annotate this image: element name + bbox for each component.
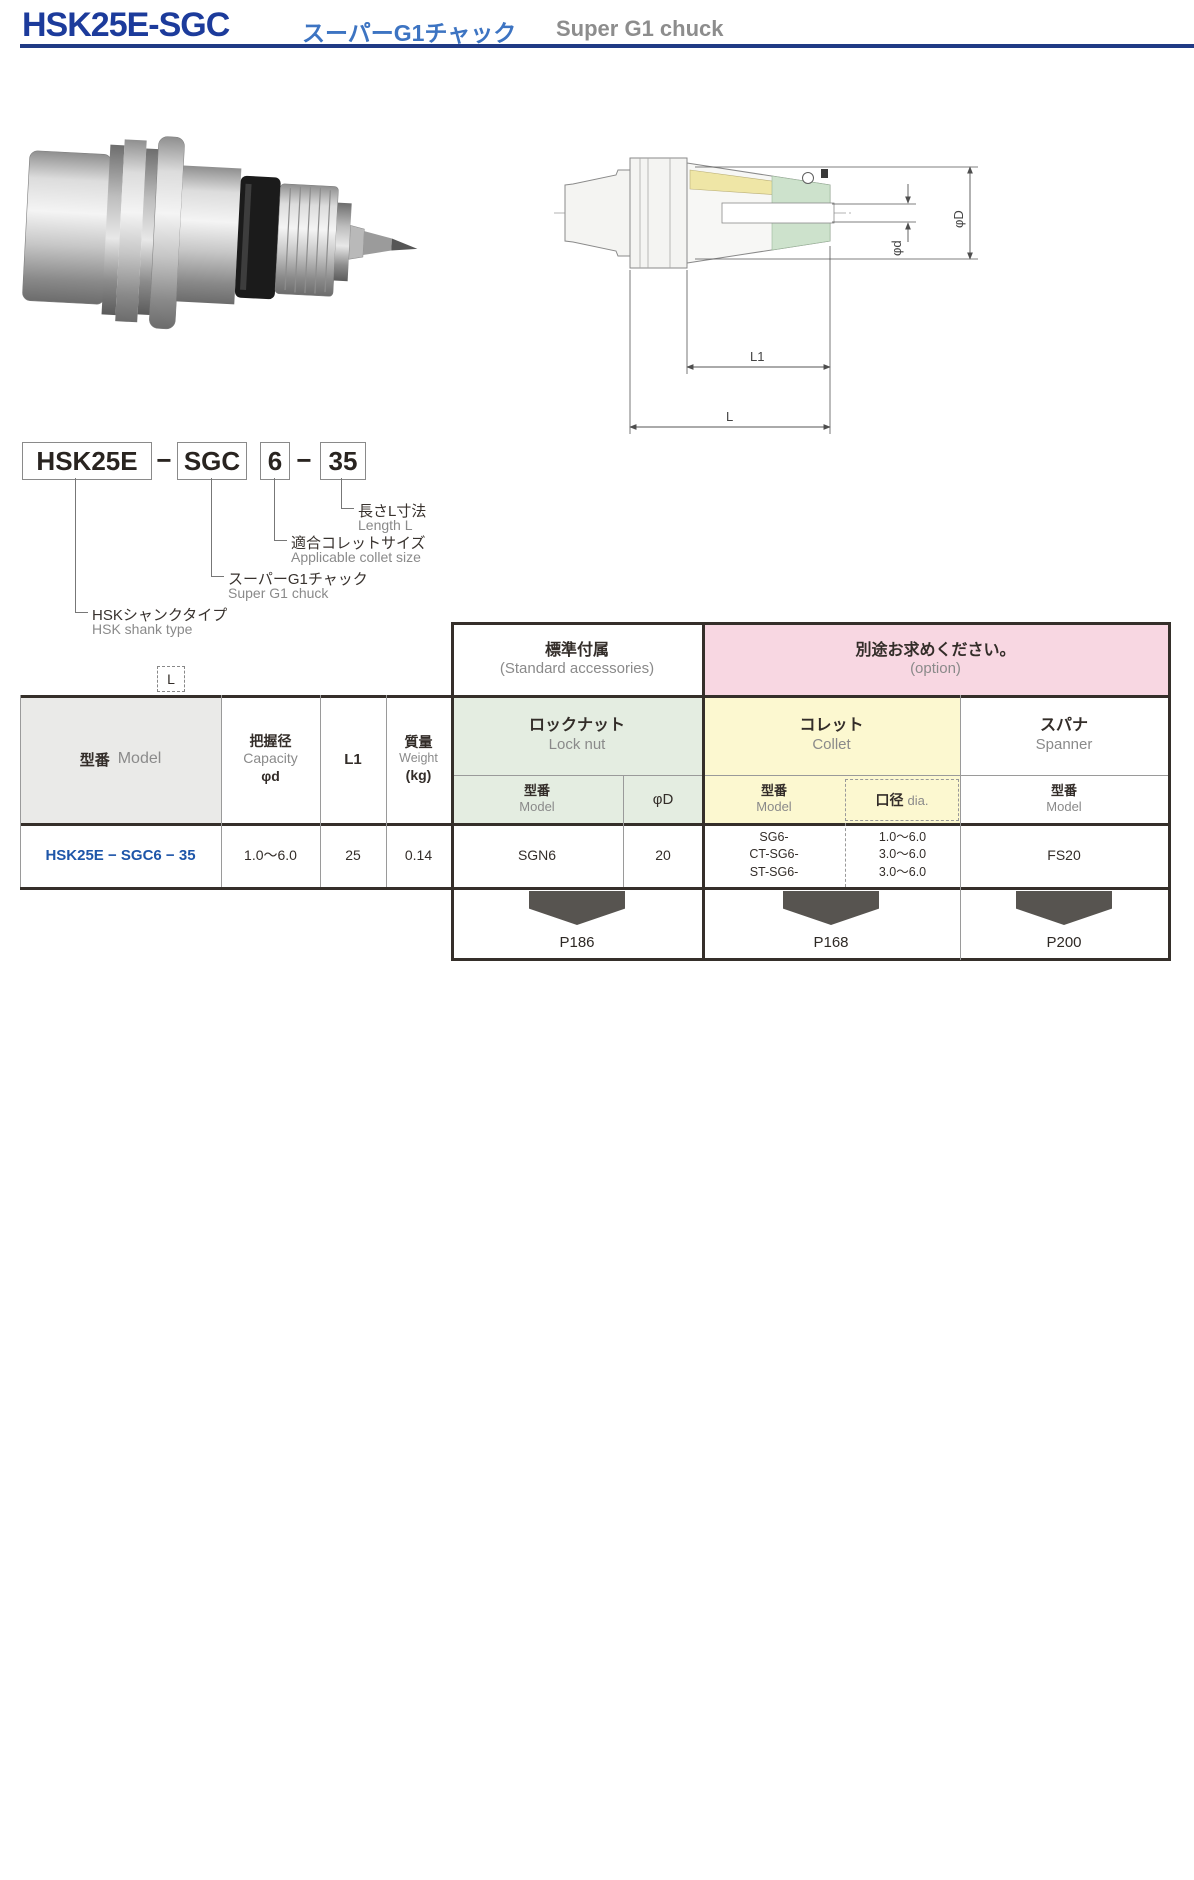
collet-dia-line: 3.0〜6.0 <box>879 846 926 864</box>
col-header-model: 型番 Model <box>20 695 221 823</box>
code-box-collet-size: 6 <box>260 442 290 480</box>
dim-label-L1: L1 <box>750 349 764 364</box>
option-jp: 別途お求めください。 <box>855 641 1015 661</box>
drawing-ball-detail <box>803 173 814 184</box>
subheader-spanner-model: 型番 Model <box>960 775 1168 823</box>
row-collet-models: SG6- CT-SG6- ST-SG6- <box>703 823 845 887</box>
page-ref-locknut: P186 <box>529 930 625 954</box>
callout-line <box>341 508 354 509</box>
col-capacity-phid: φd <box>261 768 280 785</box>
code-dash: − <box>152 442 176 478</box>
row-locknut-model: SGN6 <box>451 823 623 887</box>
col-weight-jp: 質量 <box>405 734 433 751</box>
photo-collet-tip <box>349 225 365 260</box>
col-model-jp: 型番 <box>80 749 110 770</box>
photo-drill-shank <box>363 231 392 256</box>
callout-line <box>274 478 275 540</box>
drawing-clamp-detail <box>821 169 828 178</box>
subheader-model-en: Model <box>756 799 791 815</box>
subheader-locknut-model: 型番 Model <box>451 775 623 823</box>
page-ref-arrow <box>529 891 625 925</box>
dim-label-L: L <box>726 409 733 424</box>
subheader-model-jp: 型番 <box>1051 783 1077 799</box>
callout-line <box>75 612 88 613</box>
option-en: (option) <box>910 660 961 678</box>
drawing-bore <box>722 203 834 223</box>
col-header-l1: L1 <box>320 695 386 823</box>
callout-line <box>211 478 212 576</box>
collet-model-line: ST-SG6- <box>750 864 799 882</box>
row-weight: 0.14 <box>386 823 451 887</box>
col-spanner-en: Spanner <box>1036 736 1093 754</box>
group-header-option: 別途お求めください。 (option) <box>703 624 1168 695</box>
col-capacity-jp: 把握径 <box>250 733 292 750</box>
col-header-capacity: 把握径 Capacity φd <box>221 695 320 823</box>
photo-drill-tip <box>391 239 418 252</box>
callout-line <box>75 478 76 612</box>
col-collet-jp: コレット <box>799 716 863 736</box>
code-box-length: 35 <box>320 442 366 480</box>
toolholder-photo-group <box>21 129 420 341</box>
subheader-dia-en: dia. <box>908 793 929 808</box>
col-header-weight: 質量 Weight (kg) <box>386 695 451 823</box>
table-border <box>1168 622 1171 961</box>
col-weight-en: Weight <box>399 751 438 766</box>
collet-model-line: CT-SG6- <box>749 846 798 864</box>
callout-shank-en: HSK shank type <box>92 621 192 637</box>
code-box-series: SGC <box>177 442 247 480</box>
col-collet-en: Collet <box>812 736 850 754</box>
page-subtitle-jp: スーパーG1チャック <box>302 14 516 48</box>
photo-body <box>176 166 241 305</box>
subheader-phiD: φD <box>623 775 703 823</box>
collet-dia-line: 3.0〜6.0 <box>879 864 926 882</box>
row-model: HSK25E − SGC6 − 35 <box>20 823 221 887</box>
row-capacity: 1.0〜6.0 <box>221 823 320 887</box>
subheader-dia-box: 口径 dia. <box>845 779 959 821</box>
subheader-model-en: Model <box>519 799 554 815</box>
col-capacity-en: Capacity <box>243 750 297 767</box>
drawing-shank <box>565 170 630 256</box>
product-photo <box>10 122 420 350</box>
subheader-collet-model: 型番 Model <box>703 775 845 823</box>
col-model-en: Model <box>118 750 162 768</box>
callout-line <box>211 576 224 577</box>
photo-locknut <box>275 184 339 297</box>
callout-collet-size-en: Applicable collet size <box>291 549 421 565</box>
col-header-collet: コレット Collet <box>703 695 960 775</box>
code-box-shank: HSK25E <box>22 442 152 480</box>
code-dash: − <box>290 442 318 478</box>
dim-label-phid: φd <box>889 240 904 256</box>
row-collet-dias: 1.0〜6.0 3.0〜6.0 3.0〜6.0 <box>845 823 960 887</box>
page-ref-spanner: P200 <box>1016 930 1112 954</box>
subheader-model-en: Model <box>1046 799 1081 815</box>
col-locknut-jp: ロックナット <box>529 716 625 736</box>
collet-dia-line: 1.0〜6.0 <box>879 829 926 847</box>
subheader-dia-jp: 口径 <box>876 790 904 810</box>
page-ref-arrow <box>783 891 879 925</box>
col-locknut-en: Lock nut <box>549 736 606 754</box>
standard-accessories-en: (Standard accessories) <box>500 660 654 678</box>
catalog-page: HSK25E-SGC スーパーG1チャック Super G1 chuck <box>0 0 1194 1880</box>
callout-line <box>274 540 287 541</box>
page-ref-arrow <box>1016 891 1112 925</box>
page-subtitle-en: Super G1 chuck <box>556 16 724 42</box>
page-title: HSK25E-SGC <box>22 6 229 45</box>
row-l1: 25 <box>320 823 386 887</box>
callout-length-en: Length L <box>358 517 413 533</box>
col-spanner-jp: スパナ <box>1040 716 1088 736</box>
subheader-model-jp: 型番 <box>761 783 787 799</box>
col-header-locknut: ロックナット Lock nut <box>451 695 703 775</box>
col-header-spanner: スパナ Spanner <box>960 695 1168 775</box>
technical-drawing: φd φD L1 L <box>540 140 1010 460</box>
table-border <box>20 887 1171 890</box>
legend-l-box: L <box>157 666 185 692</box>
standard-accessories-jp: 標準付属 <box>545 641 609 661</box>
callout-series-en: Super G1 chuck <box>228 585 328 601</box>
header-rule <box>20 44 1194 48</box>
row-phiD: 20 <box>623 823 703 887</box>
table-border <box>451 958 1171 961</box>
collet-model-line: SG6- <box>759 829 788 847</box>
dim-label-phiD: φD <box>951 210 966 228</box>
photo-shank-cylinder <box>22 150 112 304</box>
subheader-model-jp: 型番 <box>524 783 550 799</box>
drawing-flange <box>630 158 687 268</box>
callout-line <box>341 478 342 508</box>
group-header-standard: 標準付属 (Standard accessories) <box>451 624 703 695</box>
col-weight-unit: (kg) <box>406 767 432 784</box>
row-spanner-model: FS20 <box>960 823 1168 887</box>
page-ref-collet: P168 <box>783 930 879 954</box>
